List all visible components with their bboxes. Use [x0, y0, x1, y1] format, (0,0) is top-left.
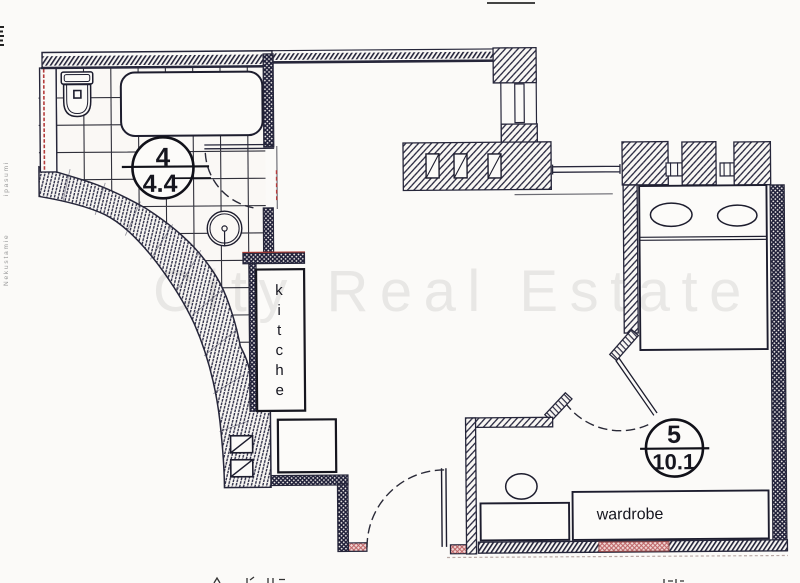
- svg-text:10.1: 10.1: [652, 449, 695, 474]
- svg-text:e: e: [275, 382, 283, 399]
- svg-text:4: 4: [156, 142, 171, 172]
- svg-text:i p a s u m i: i p a s u m i: [3, 163, 10, 196]
- svg-text:5: 5: [667, 421, 681, 449]
- svg-text:4.4: 4.4: [143, 170, 178, 198]
- svg-text:N e k u s t a m i e: N e k u s t a m i e: [3, 235, 10, 286]
- svg-text:h: h: [275, 362, 283, 379]
- svg-text:City Real Estate: City Real Estate: [153, 259, 753, 324]
- svg-text:wardrobe: wardrobe: [596, 506, 664, 524]
- svg-text:c: c: [276, 342, 284, 359]
